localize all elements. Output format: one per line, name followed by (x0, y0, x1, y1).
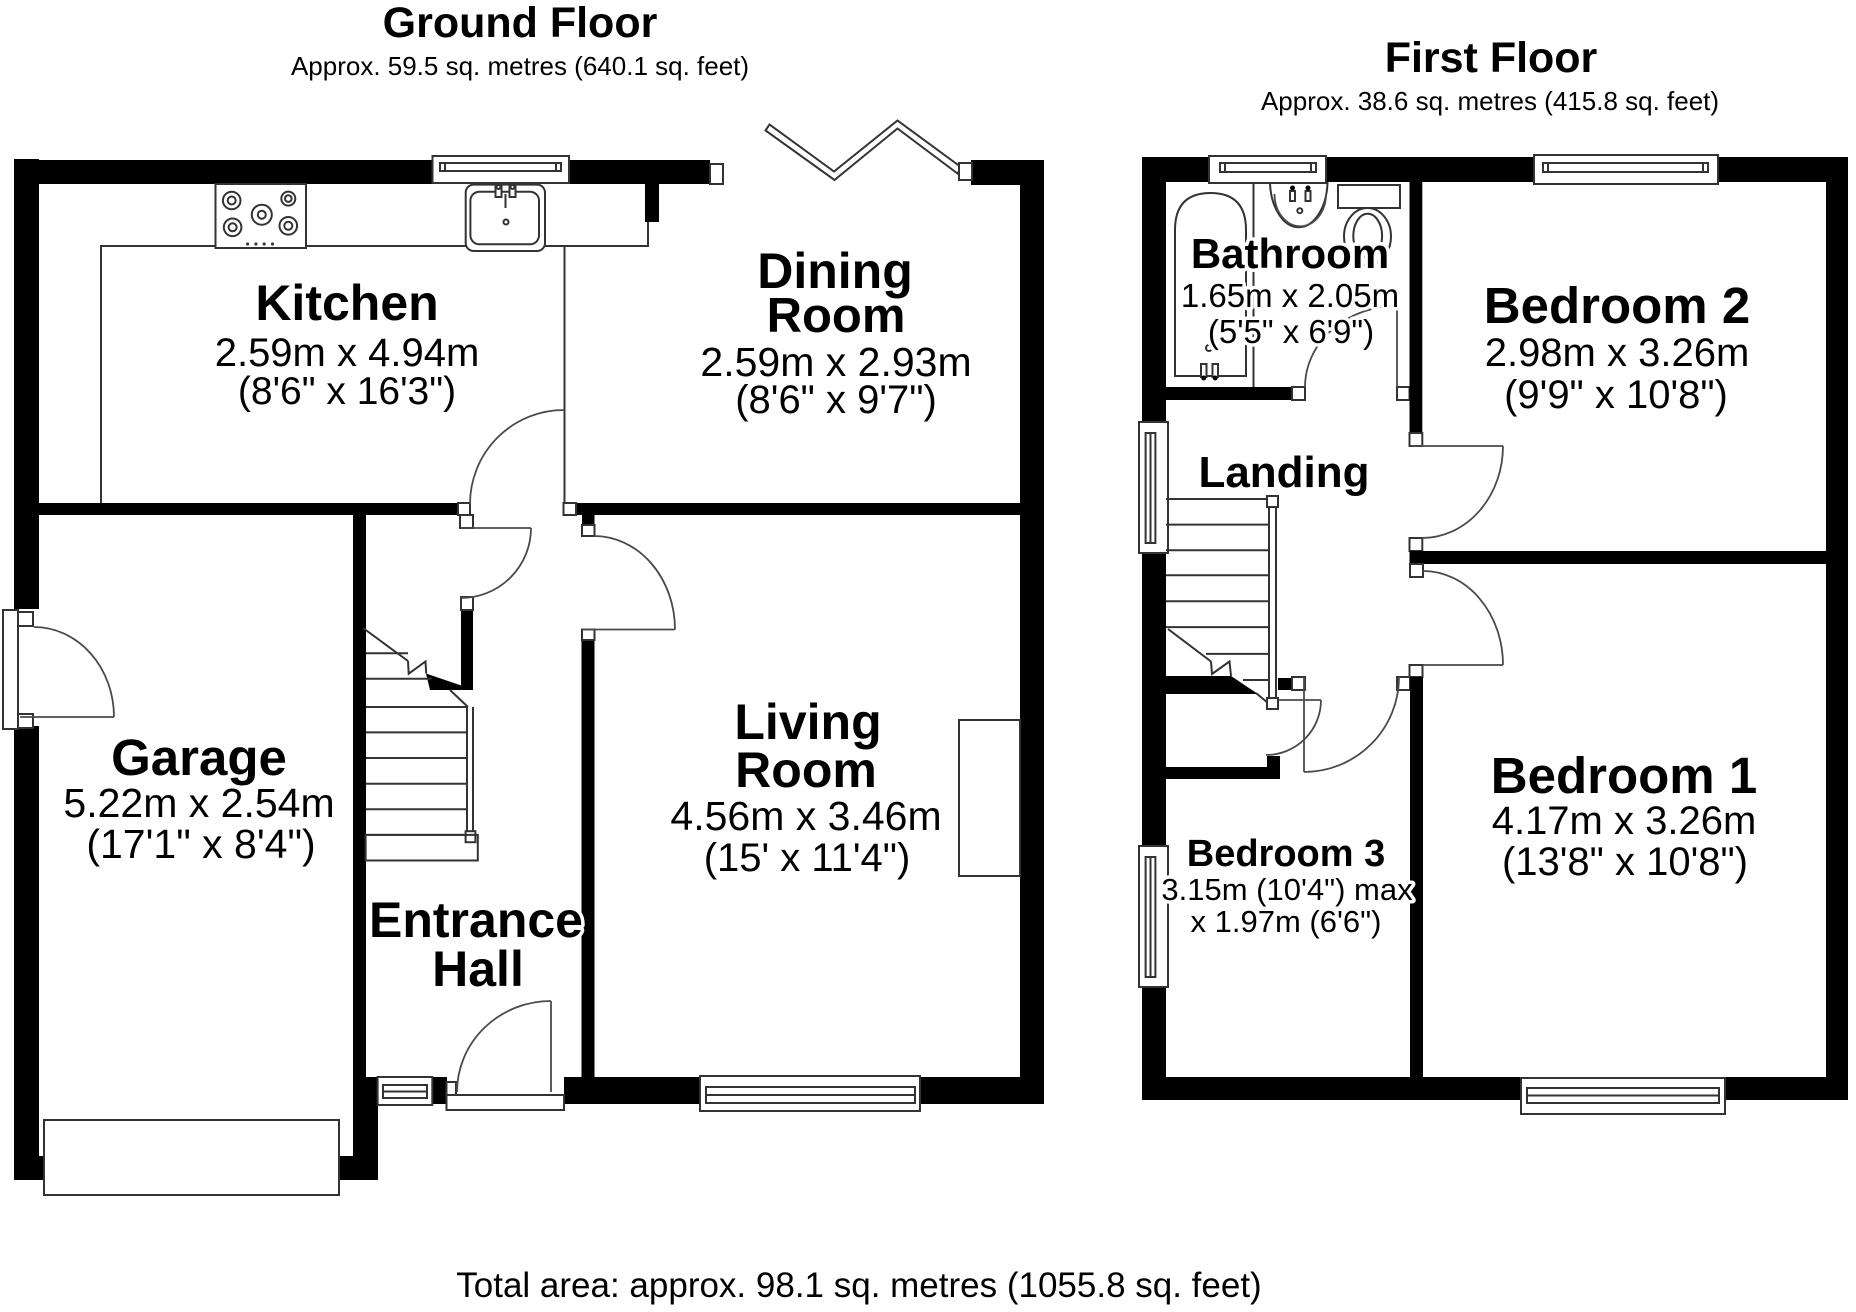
svg-text:Kitchen: Kitchen (255, 275, 438, 331)
svg-text:Bedroom 2: Bedroom 2 (1484, 277, 1750, 334)
svg-text:Approx. 38.6 sq. metres (415.8: Approx. 38.6 sq. metres (415.8 sq. feet) (1261, 86, 1719, 116)
svg-text:Bedroom 1: Bedroom 1 (1491, 747, 1757, 804)
svg-text:Bedroom 3: Bedroom 3 (1187, 833, 1385, 875)
svg-text:(17'1" x 8'4"): (17'1" x 8'4") (86, 821, 315, 867)
svg-text:Ground Floor: Ground Floor (383, 0, 658, 47)
svg-text:Hall: Hall (432, 941, 524, 997)
svg-text:(13'8" x 10'8"): (13'8" x 10'8") (1502, 840, 1748, 884)
svg-text:Room: Room (735, 742, 877, 798)
svg-text:1.65m x 2.05m: 1.65m x 2.05m (1181, 277, 1399, 314)
svg-text:(15' x 11'4"): (15' x 11'4") (704, 836, 911, 880)
svg-text:(9'9" x 10'8"): (9'9" x 10'8") (1504, 373, 1728, 417)
svg-text:Bathroom: Bathroom (1191, 230, 1389, 277)
svg-text:2.59m x 4.94m: 2.59m x 4.94m (215, 331, 480, 375)
svg-text:5.22m x 2.54m: 5.22m x 2.54m (63, 780, 334, 826)
svg-text:Landing: Landing (1198, 448, 1369, 497)
svg-text:x 1.97m (6'6"): x 1.97m (6'6") (1191, 904, 1382, 939)
svg-text:Garage: Garage (111, 729, 287, 786)
svg-text:4.17m x 3.26m: 4.17m x 3.26m (1492, 799, 1757, 843)
svg-text:Approx. 59.5 sq. metres (640.1: Approx. 59.5 sq. metres (640.1 sq. feet) (291, 51, 749, 81)
svg-text:(8'6" x 16'3"): (8'6" x 16'3") (238, 370, 456, 413)
svg-text:(8'6" x 9'7"): (8'6" x 9'7") (735, 378, 937, 422)
svg-text:3.15m (10'4") max: 3.15m (10'4") max (1161, 872, 1413, 907)
svg-text:2.98m x 3.26m: 2.98m x 3.26m (1485, 331, 1750, 375)
svg-text:Total area: approx. 98.1 sq. m: Total area: approx. 98.1 sq. metres (105… (456, 1266, 1261, 1305)
svg-text:4.56m x 3.46m: 4.56m x 3.46m (670, 793, 941, 839)
svg-text:Entrance: Entrance (369, 892, 583, 948)
svg-text:(5'5" x 6'9"): (5'5" x 6'9") (1208, 313, 1374, 350)
svg-text:Room: Room (767, 289, 906, 343)
svg-text:First Floor: First Floor (1385, 34, 1598, 82)
